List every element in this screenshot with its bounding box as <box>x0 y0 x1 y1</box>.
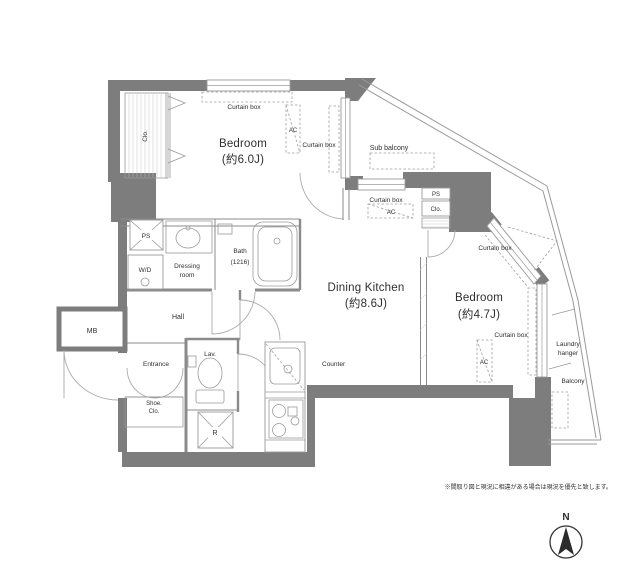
compass-icon: N <box>550 512 582 558</box>
dining-kitchen-size: (約8.6J) <box>345 296 387 310</box>
ac-label-3: AC <box>480 360 489 366</box>
clo-right-label: Clo. <box>431 207 442 213</box>
bedroom1-door-arc <box>300 173 344 219</box>
curtain-box-label-4: Curtain box <box>478 245 512 252</box>
curtain-box-label-1: Curtain box <box>227 104 261 111</box>
mb-label: MB <box>87 328 98 335</box>
clo-bedroom1-label: Clo. <box>142 130 149 142</box>
hall-label: Hall <box>172 314 185 321</box>
ps-right-label: PS <box>432 192 440 198</box>
toilet <box>198 358 222 388</box>
dining-kitchen-name: Dining Kitchen <box>328 282 405 294</box>
bedroom2-name: Bedroom <box>455 292 503 304</box>
curtain-box-bedroom2-side <box>528 288 536 375</box>
entrance-door-arc <box>64 350 118 400</box>
lav-label: Lav. <box>204 351 216 358</box>
curtain-box-label-2: Curtain box <box>302 142 336 149</box>
ac-label-2: AC <box>387 210 396 216</box>
curtain-box-label-5: Curtain box <box>494 332 528 339</box>
balcony-unit <box>552 392 568 428</box>
refrigerator-label: R <box>212 430 217 437</box>
bath-label-1: Bath <box>233 248 247 255</box>
closet-slide-arrows <box>168 96 185 163</box>
shoe-clo-label-2: Clo. <box>149 409 160 415</box>
dressing-label-2: room <box>180 272 195 279</box>
sub-balcony-label: Sub balcony <box>370 145 409 152</box>
kitchen <box>265 342 305 452</box>
curtain-box-label-3: Curtain box <box>369 197 403 204</box>
floorplan-svg: Bedroom (約6.0J) Dining Kitchen (約8.6J) B… <box>0 0 628 569</box>
sub-balcony-unit <box>370 153 434 169</box>
dressing-door-arc <box>212 292 255 334</box>
counter-label: Counter <box>322 361 346 368</box>
north-label: N <box>562 512 569 523</box>
laundry-hanger-arms <box>549 309 575 369</box>
ac-label-1: AC <box>289 128 298 134</box>
north-arrow <box>558 527 574 555</box>
laundry-hanger-label-1: Laundry <box>556 341 580 348</box>
bath-label-2: (1216) <box>231 259 250 266</box>
bathtub <box>253 222 297 286</box>
wd-label: W/D <box>139 267 152 274</box>
dressing-label-1: Dressing <box>174 263 200 270</box>
laundry-hanger-label-2: hanger <box>558 350 579 357</box>
kitchen-counter <box>265 342 305 452</box>
bedroom1-name: Bedroom <box>219 138 267 150</box>
entrance-label: Entrance <box>143 361 169 368</box>
balcony-label: Balcony <box>561 378 585 385</box>
bedroom2-door-arc <box>428 230 455 257</box>
shoe-closet-door-arcs <box>127 368 183 398</box>
shoe-clo-label-1: Shoe. <box>146 401 162 407</box>
bedroom2-size: (約4.7J) <box>458 307 500 321</box>
floorplan-page: Bedroom (約6.0J) Dining Kitchen (約8.6J) B… <box>0 0 628 569</box>
hall-dk-door-arc <box>240 300 280 340</box>
bedroom1-size: (約6.0J) <box>222 152 264 166</box>
curtain-box-bedroom1-side <box>329 106 339 172</box>
curtain-box-bedroom1-top <box>202 92 292 102</box>
disclaimer-note: ※間取り図と現況に相違がある場合は現況を優先と致します。 <box>445 483 612 491</box>
ps-left-label: PS <box>142 233 151 240</box>
